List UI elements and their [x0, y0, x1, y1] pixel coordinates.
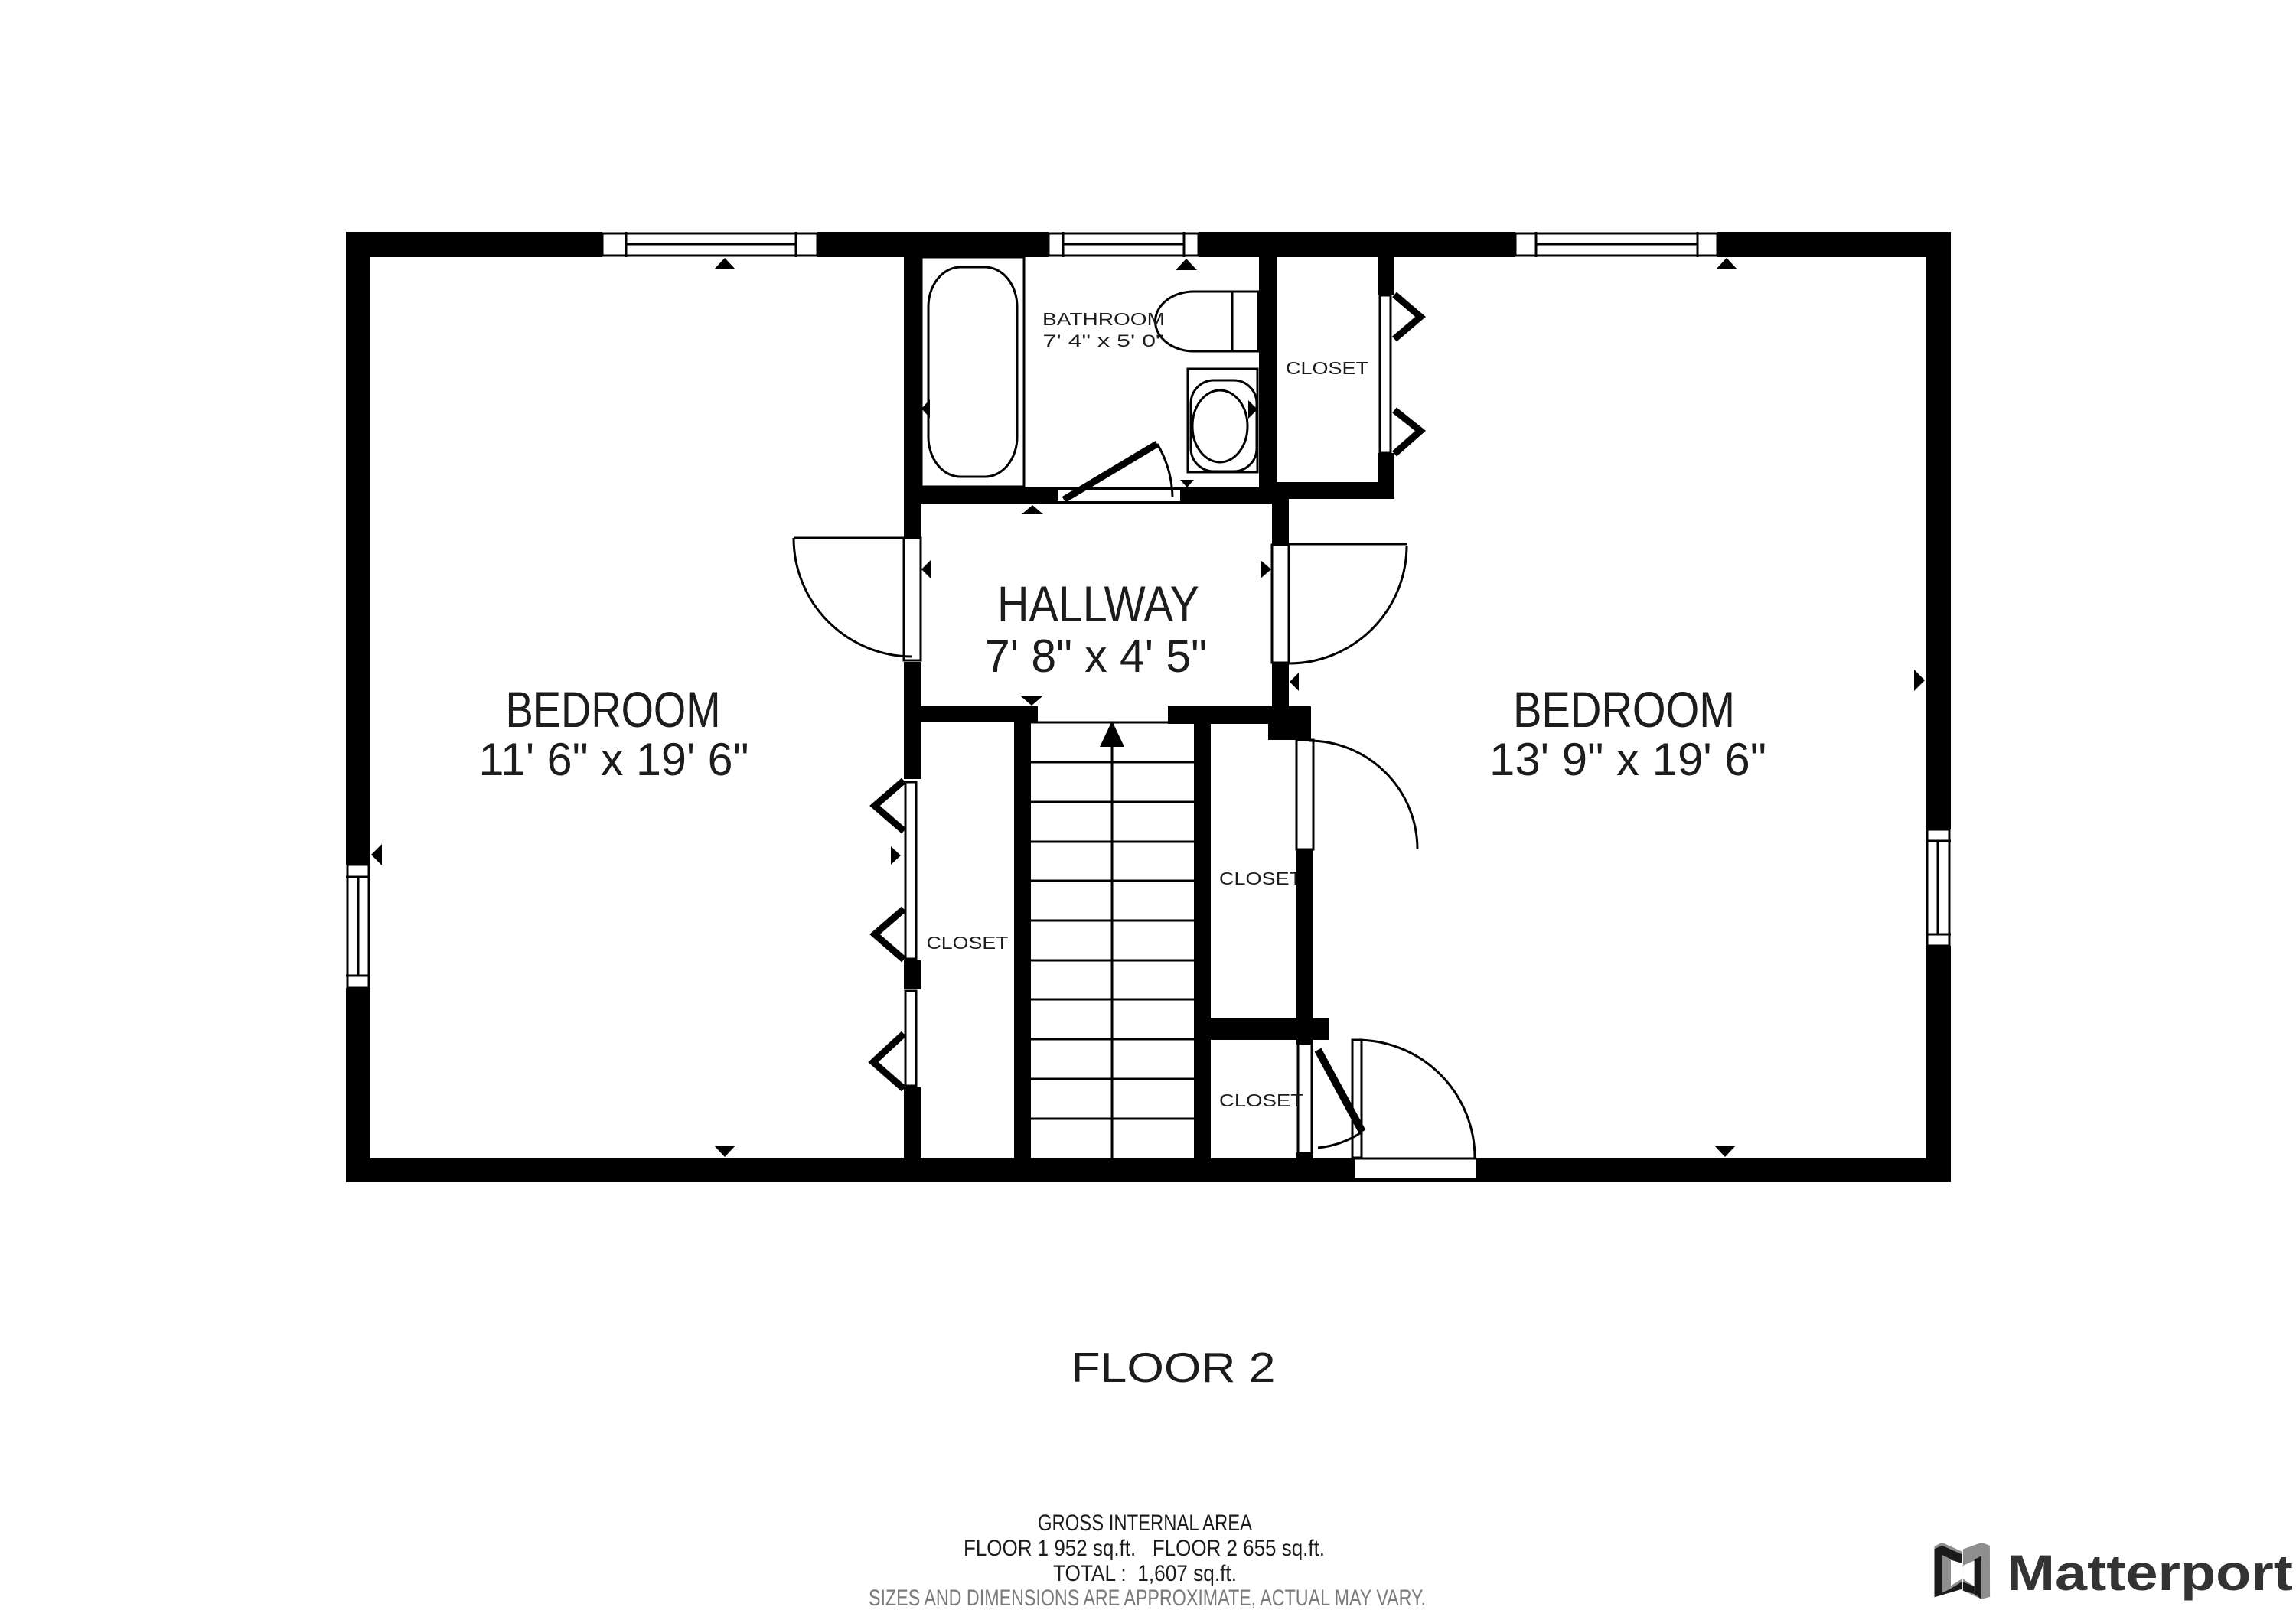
svg-text:Matterport: Matterport: [2007, 1544, 2293, 1601]
svg-text:7' 4" x 5' 0": 7' 4" x 5' 0": [1043, 331, 1165, 350]
svg-text:GROSS INTERNAL AREA: GROSS INTERNAL AREA: [1038, 1511, 1252, 1536]
svg-text:SIZES AND DIMENSIONS ARE APPRO: SIZES AND DIMENSIONS ARE APPROXIMATE, AC…: [869, 1586, 1426, 1611]
svg-text:HALLWAY: HALLWAY: [997, 575, 1199, 632]
svg-text:FLOOR 1 952 sq.ft. FLOOR 2 6: FLOOR 1 952 sq.ft. FLOOR 2 655 sq.ft.: [964, 1536, 1325, 1561]
svg-text:11' 6" x 19' 6": 11' 6" x 19' 6": [479, 734, 749, 785]
svg-text:TOTAL : 1,607 sq.ft.: TOTAL : 1,607 sq.ft.: [1053, 1561, 1237, 1586]
svg-text:CLOSET: CLOSET: [1219, 1090, 1303, 1110]
svg-text:CLOSET: CLOSET: [1219, 869, 1302, 888]
svg-text:BATHROOM: BATHROOM: [1042, 309, 1165, 329]
svg-text:7' 8" x 4' 5": 7' 8" x 4' 5": [985, 631, 1207, 682]
svg-text:BEDROOM: BEDROOM: [506, 681, 721, 738]
svg-text:CLOSET: CLOSET: [1286, 358, 1368, 378]
svg-text:13' 9" x 19' 6": 13' 9" x 19' 6": [1489, 734, 1766, 785]
svg-text:BEDROOM: BEDROOM: [1513, 681, 1735, 738]
svg-text:FLOOR 2: FLOOR 2: [1071, 1344, 1276, 1391]
svg-text:CLOSET: CLOSET: [927, 933, 1009, 953]
